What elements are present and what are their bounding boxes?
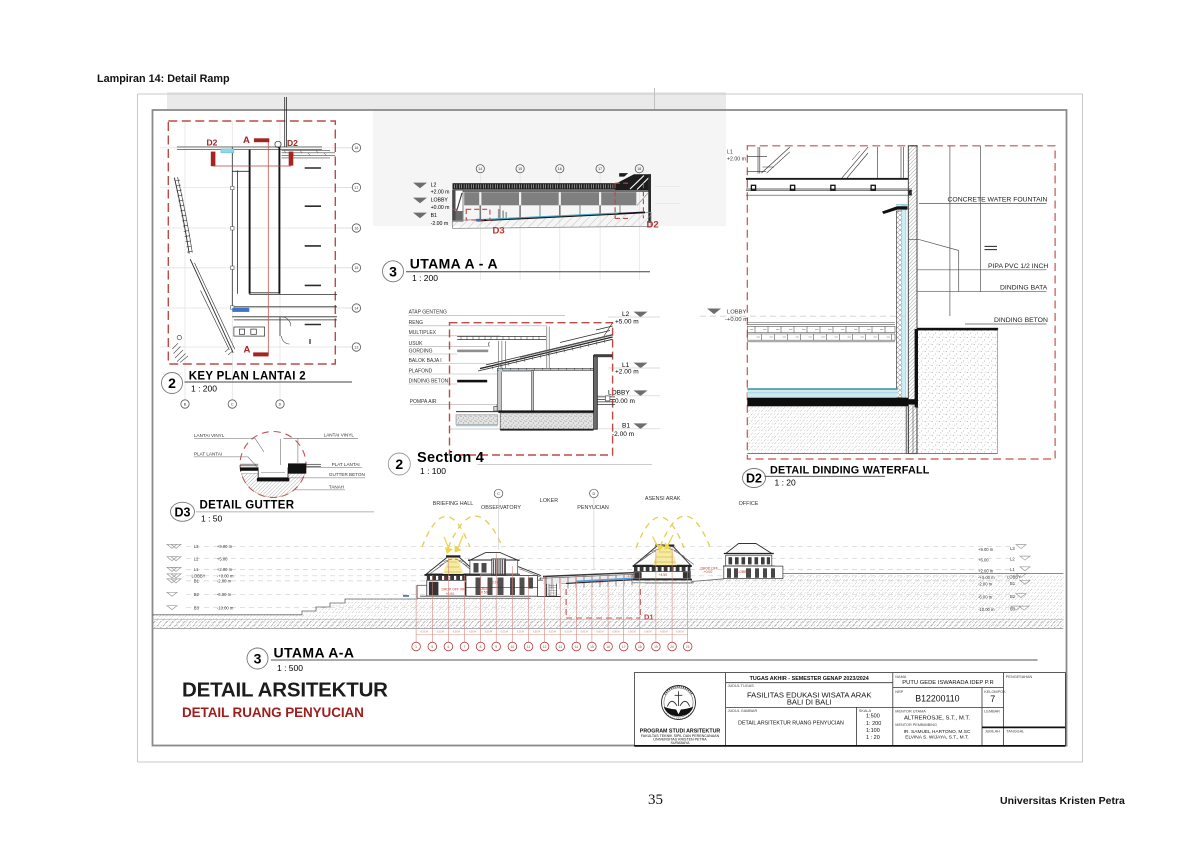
- svg-text:18: 18: [638, 645, 642, 649]
- svg-text:6.00 M: 6.00 M: [533, 631, 540, 634]
- svg-text:PIPA PVC 1/2 INCH: PIPA PVC 1/2 INCH: [988, 263, 1048, 270]
- svg-text:+9.00 m: +9.00 m: [217, 544, 233, 549]
- svg-text:6.00 M: 6.00 M: [469, 631, 476, 634]
- svg-text:13: 13: [558, 645, 562, 649]
- svg-text:SURABAYA: SURABAYA: [670, 741, 690, 745]
- svg-text:-2.00 m: -2.00 m: [217, 579, 232, 584]
- svg-text:-1.00: -1.00: [627, 574, 635, 578]
- svg-text:+5.00: +5.00: [217, 556, 228, 561]
- svg-text:-10.00 m: -10.00 m: [217, 605, 234, 610]
- svg-text:LANTAI VINYL: LANTAI VINYL: [194, 433, 225, 438]
- svg-text:+0.00: +0.00: [444, 576, 452, 580]
- svg-text:NRP: NRP: [895, 690, 903, 694]
- svg-text:BALI DI BALI: BALI DI BALI: [787, 697, 832, 706]
- svg-text:3: 3: [389, 263, 397, 279]
- svg-text:GUTTER BETON: GUTTER BETON: [329, 472, 365, 477]
- svg-text:+2.00 m: +2.00 m: [727, 157, 746, 163]
- svg-text:2: 2: [395, 456, 403, 472]
- svg-text:L1: L1: [1010, 567, 1015, 572]
- svg-text:6.00 M: 6.00 M: [596, 631, 603, 634]
- svg-text:7: 7: [464, 645, 466, 649]
- svg-text:11: 11: [527, 645, 531, 649]
- svg-text:DETAIL ARSITEKTUR RUANG PENYUC: DETAIL ARSITEKTUR RUANG PENYUCIAN: [738, 721, 844, 727]
- svg-text:9: 9: [495, 645, 497, 649]
- svg-text:-2.00 m: -2.00 m: [612, 431, 634, 438]
- svg-text:5: 5: [431, 645, 433, 649]
- svg-text:16: 16: [354, 226, 358, 230]
- svg-text:LOBBY: LOBBY: [431, 198, 449, 204]
- svg-text:D2: D2: [746, 472, 762, 486]
- svg-text:+9.00 m: +9.00 m: [978, 547, 994, 552]
- svg-text:OBSERVATORY: OBSERVATORY: [481, 505, 521, 511]
- svg-text:D2: D2: [647, 220, 659, 231]
- svg-text:UTAMA A-A: UTAMA A-A: [274, 645, 355, 661]
- svg-text:1 : 50: 1 : 50: [201, 514, 223, 524]
- svg-text:6: 6: [447, 645, 449, 649]
- svg-text:6.00 M: 6.00 M: [628, 631, 635, 634]
- svg-text:MENTOR PEMBIMBING: MENTOR PEMBIMBING: [895, 723, 937, 727]
- svg-text:JUMLAH: JUMLAH: [985, 729, 1000, 733]
- svg-text:+2.00 m: +2.00 m: [978, 569, 994, 574]
- svg-text:-+0.00 m: -+0.00 m: [725, 317, 748, 323]
- svg-text:ATAP GENTENG: ATAP GENTENG: [409, 310, 447, 316]
- svg-text:L2: L2: [431, 183, 437, 189]
- svg-text:15: 15: [354, 266, 358, 270]
- svg-text:6.00 M: 6.00 M: [549, 631, 556, 634]
- svg-text:DROP OFF VIP: DROP OFF VIP: [442, 587, 467, 591]
- svg-text:+1.00: +1.00: [595, 580, 604, 584]
- svg-text:DETAIL DINDING WATERFALL: DETAIL DINDING WATERFALL: [770, 465, 930, 477]
- svg-text:RENG: RENG: [409, 320, 424, 326]
- svg-text:PENGESAHAN: PENGESAHAN: [1006, 675, 1033, 679]
- svg-text:Section 4: Section 4: [417, 450, 484, 466]
- svg-text:18: 18: [637, 167, 641, 171]
- svg-text:L3: L3: [194, 544, 199, 549]
- svg-text:18: 18: [354, 146, 358, 150]
- svg-text:B2: B2: [194, 592, 200, 597]
- svg-text:GORDING: GORDING: [409, 348, 433, 354]
- svg-text:L2: L2: [1010, 557, 1015, 562]
- svg-text:UTAMA A - A: UTAMA A - A: [410, 256, 498, 272]
- svg-text:6.00 M: 6.00 M: [421, 631, 428, 634]
- svg-text:OFFICE: OFFICE: [739, 501, 759, 507]
- svg-text:3: 3: [254, 651, 262, 667]
- svg-text:6.00 M: 6.00 M: [517, 631, 524, 634]
- svg-text:B1: B1: [194, 579, 200, 584]
- svg-text:TANGGAL: TANGGAL: [1006, 729, 1024, 733]
- svg-text:13: 13: [354, 345, 358, 349]
- svg-text:PLAT LANTAI: PLAT LANTAI: [194, 451, 222, 456]
- svg-text:IR. SAMUEL HARTONO, M.SC: IR. SAMUEL HARTONO, M.SC: [904, 729, 971, 735]
- svg-text:1: 1: [415, 645, 417, 649]
- svg-text:A: A: [244, 345, 251, 356]
- svg-text:17: 17: [598, 167, 602, 171]
- svg-text:DETAIL GUTTER: DETAIL GUTTER: [200, 500, 295, 512]
- svg-text:TANAH: TANAH: [329, 484, 344, 489]
- svg-text:L2: L2: [194, 556, 199, 561]
- svg-text:+0.00: +0.00: [446, 592, 455, 596]
- svg-text:1 : 500: 1 : 500: [277, 663, 303, 673]
- svg-text:+5.00 m: +5.00 m: [615, 318, 639, 325]
- svg-text:+2.00 m: +2.00 m: [431, 190, 450, 196]
- svg-text:+6.00: +6.00: [978, 557, 989, 562]
- svg-text:21: 21: [686, 645, 690, 649]
- svg-text:6.00 M: 6.00 M: [501, 631, 508, 634]
- svg-text:6.00 M: 6.00 M: [644, 631, 651, 634]
- svg-text:-6.00 m: -6.00 m: [217, 592, 232, 597]
- svg-text:1 : 200: 1 : 200: [412, 273, 438, 283]
- svg-text:1 : 20: 1 : 20: [775, 478, 797, 488]
- svg-text:2: 2: [168, 375, 176, 391]
- svg-text:1 : 20: 1 : 20: [866, 735, 880, 741]
- svg-text:PUTU GEDE ISWARADA IDEP P.R: PUTU GEDE ISWARADA IDEP P.R: [902, 680, 993, 686]
- svg-text:16: 16: [558, 167, 562, 171]
- svg-text:JUDUL TUGAS: JUDUL TUGAS: [728, 684, 755, 688]
- svg-text:1:100: 1:100: [866, 728, 880, 734]
- svg-text:14: 14: [574, 645, 578, 649]
- svg-text:DINDING BATA: DINDING BATA: [1000, 284, 1048, 291]
- svg-text:+4.50: +4.50: [659, 573, 668, 577]
- svg-text:KEY PLAN LANTAI 2: KEY PLAN LANTAI 2: [189, 371, 306, 383]
- svg-text:POMPA AIR: POMPA AIR: [410, 399, 437, 405]
- svg-text:15: 15: [590, 645, 594, 649]
- svg-text:17: 17: [354, 186, 358, 190]
- svg-text:+2.00 m: +2.00 m: [217, 567, 233, 572]
- svg-text:D3: D3: [493, 226, 505, 237]
- svg-text:6.00 M: 6.00 M: [660, 631, 667, 634]
- svg-text:LANTAI VINYL: LANTAI VINYL: [324, 433, 355, 438]
- svg-text:6.00 M: 6.00 M: [565, 631, 572, 634]
- svg-text:LEMBAR: LEMBAR: [984, 710, 1000, 714]
- svg-text:USUK: USUK: [409, 341, 424, 347]
- svg-text:D2: D2: [287, 138, 298, 148]
- svg-text:10: 10: [511, 645, 515, 649]
- svg-text:TUGAS AKHIR - SEMESTER GENAP 2: TUGAS AKHIR - SEMESTER GENAP 2023/2024: [750, 676, 869, 682]
- svg-text:D3: D3: [175, 505, 191, 519]
- svg-text:MULTIPLEX: MULTIPLEX: [409, 330, 437, 336]
- svg-text:D: D: [593, 492, 596, 496]
- svg-text:BALOK BAJA I: BALOK BAJA I: [409, 358, 442, 364]
- svg-text:DINDING BETON: DINDING BETON: [409, 378, 449, 384]
- svg-text:LOBBY: LOBBY: [727, 309, 746, 315]
- svg-text:1:500: 1:500: [866, 714, 880, 720]
- svg-text:JUDUL GAMBAR: JUDUL GAMBAR: [728, 709, 758, 713]
- svg-text:6.00 M: 6.00 M: [580, 631, 587, 634]
- svg-text:6.00 M: 6.00 M: [485, 631, 492, 634]
- svg-text:PLAFOND: PLAFOND: [409, 368, 433, 374]
- svg-text:DETAIL ARSITEKTUR: DETAIL ARSITEKTUR: [182, 679, 388, 702]
- svg-text:7: 7: [990, 694, 995, 704]
- svg-text:SKALA: SKALA: [859, 709, 872, 713]
- svg-text:D2: D2: [207, 138, 218, 148]
- svg-text:C: C: [497, 492, 500, 496]
- svg-text:6.00 M: 6.00 M: [437, 631, 444, 634]
- svg-text:12: 12: [543, 645, 547, 649]
- svg-text:PENYUCIAN: PENYUCIAN: [577, 505, 609, 511]
- svg-text:1 : 200: 1 : 200: [191, 384, 217, 394]
- svg-text:L1: L1: [727, 150, 733, 156]
- svg-text:D1: D1: [644, 613, 654, 622]
- svg-text:17: 17: [622, 645, 626, 649]
- svg-text:16: 16: [606, 645, 610, 649]
- svg-text:LOKER: LOKER: [540, 498, 558, 504]
- svg-text:1 : 100: 1 : 100: [420, 466, 446, 476]
- svg-text:D: D: [279, 403, 282, 407]
- svg-text:+2.00: +2.00: [490, 581, 499, 585]
- svg-text:6.00 M: 6.00 M: [676, 631, 683, 634]
- svg-text:PLAT LANTAI: PLAT LANTAI: [332, 462, 360, 467]
- svg-text:B12200110: B12200110: [915, 694, 959, 704]
- svg-text:14: 14: [354, 306, 358, 310]
- svg-text:NAMA: NAMA: [895, 675, 906, 679]
- svg-text:+2.00 m: +2.00 m: [615, 368, 639, 375]
- svg-text:DINDING BETON: DINDING BETON: [994, 317, 1048, 324]
- svg-text:ASENSI ARAK: ASENSI ARAK: [645, 496, 681, 502]
- svg-text:20: 20: [670, 645, 674, 649]
- svg-text:A: A: [243, 135, 250, 146]
- svg-text:ELVINA S. WIJAYA, S.T., M.T.: ELVINA S. WIJAYA, S.T., M.T.: [905, 735, 968, 741]
- svg-text:LOBBY: LOBBY: [738, 570, 750, 574]
- svg-text:BRIEFING HALL: BRIEFING HALL: [433, 501, 473, 507]
- svg-text:ALTREROSJE, S.T., M.T.: ALTREROSJE, S.T., M.T.: [904, 715, 970, 721]
- svg-text:C: C: [231, 403, 234, 407]
- svg-text:8: 8: [480, 645, 482, 649]
- svg-text:6.00 M: 6.00 M: [612, 631, 619, 634]
- svg-text:-+0.00: -+0.00: [703, 570, 713, 574]
- svg-text:-2.00 m: -2.00 m: [431, 221, 449, 227]
- svg-text:+0.50: +0.50: [479, 591, 488, 595]
- svg-text:15: 15: [518, 167, 522, 171]
- svg-text:B3: B3: [194, 605, 200, 610]
- svg-text:MENTOR UTAMA: MENTOR UTAMA: [895, 710, 926, 714]
- svg-text:19: 19: [654, 645, 658, 649]
- svg-text:B1: B1: [431, 213, 437, 219]
- svg-text:+0.00 m: +0.00 m: [431, 205, 450, 211]
- svg-text:L1: L1: [194, 567, 199, 572]
- svg-text:DETAIL RUANG PENYUCIAN: DETAIL RUANG PENYUCIAN: [182, 705, 364, 720]
- svg-text:1: 200: 1: 200: [866, 721, 881, 727]
- svg-text:14: 14: [478, 167, 482, 171]
- svg-text:0.00 m: 0.00 m: [615, 398, 635, 405]
- svg-text:6.00 M: 6.00 M: [453, 631, 460, 634]
- svg-text:B: B: [184, 403, 187, 407]
- svg-text:CONCRETE WATER FOUNTAIN: CONCRETE WATER FOUNTAIN: [948, 197, 1048, 204]
- svg-text:L3: L3: [1010, 546, 1015, 551]
